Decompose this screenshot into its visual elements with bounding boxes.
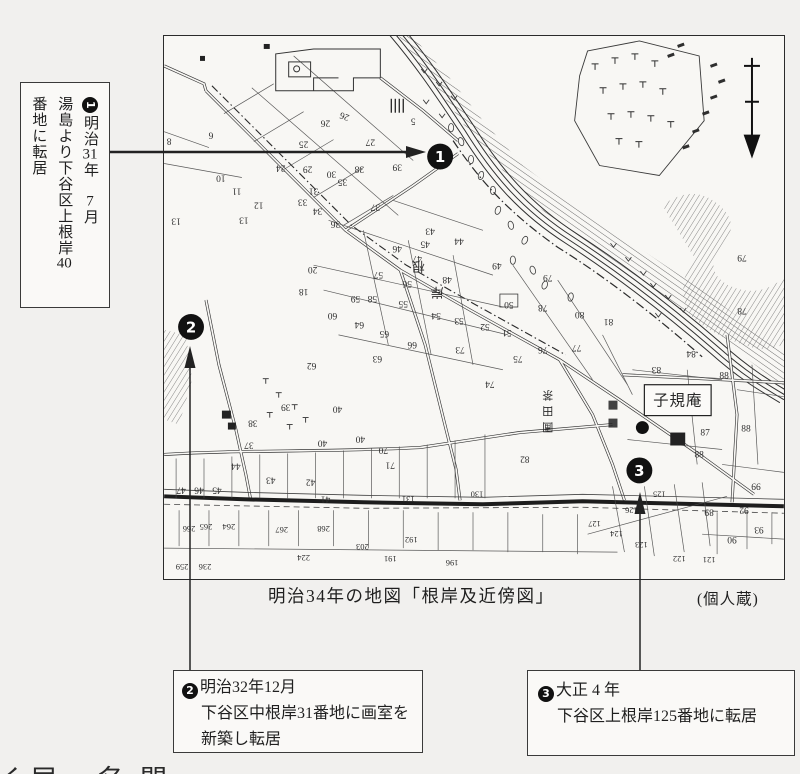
parcel-number: 126 [625, 505, 638, 515]
note3-line1: 3大正 4 年 [538, 678, 784, 704]
parcel-number: 125 [653, 489, 666, 499]
parcel-number: 52 [480, 321, 490, 331]
map-caption: 明治34年の地図「根岸及近傍図」 [268, 583, 555, 608]
parcel-number: 62 [307, 360, 317, 370]
parcel-number: 6 [208, 130, 213, 140]
note2-line3: 新築し転居 [182, 727, 414, 753]
parcel-number: 24 [276, 163, 286, 173]
marsh-hatch [164, 330, 192, 425]
parcel-number: 259 [176, 562, 189, 572]
parcel-number: 60 [328, 310, 338, 320]
parcel-number: 41 [321, 493, 331, 503]
parcel-number: 29 [303, 164, 313, 174]
residence-marker-1: 1 [427, 144, 453, 170]
parcel-number: 40 [355, 434, 365, 444]
parcel-number: 36 [331, 218, 341, 228]
note3-text1: 大正 4 年 [556, 682, 620, 699]
parcel-number: 54 [431, 310, 441, 320]
parcel-number: 71 [385, 459, 395, 469]
note1-vertical-line: 湯島より下谷区上根岸40 [50, 96, 76, 294]
parcel-number: 47 [176, 484, 186, 494]
cutoff-kanji-fragment: 居 [30, 758, 57, 774]
parcel-number: 42 [306, 476, 316, 486]
parcel-number: 44 [231, 460, 241, 470]
area-kanji-label: 根 [412, 259, 425, 274]
parcel-number: 18 [299, 286, 309, 296]
parcel-number: 79 [737, 252, 747, 262]
parcel-number: 57 [373, 269, 383, 279]
parcel-number: 48 [442, 274, 452, 284]
parcel-number: 45 [420, 238, 430, 248]
stream-hatch [662, 194, 784, 349]
parcel-number: 127 [588, 519, 601, 529]
parcel-number: 5 [411, 116, 416, 126]
cemetery-area [575, 41, 726, 176]
parcel-number: 264 [222, 522, 235, 532]
parcel-number: 90 [727, 534, 737, 544]
parcel-number: 81 [604, 316, 614, 326]
map-credit: (個人蔵) [697, 587, 759, 609]
parcel-number: 40 [318, 438, 328, 448]
note3-line2: 下谷区上根岸125番地に転居 [538, 704, 784, 730]
parcel-number: 64 [354, 319, 364, 329]
annotation-note-2: 2明治32年12月 下谷区中根岸31番地に画室を 新築し転居 [173, 670, 423, 753]
parcel-number: 63 [372, 353, 382, 363]
note2-line2: 下谷区中根岸31番地に画室を [182, 701, 414, 727]
parcel-number: 49 [492, 260, 502, 270]
parcel-number: 78 [538, 302, 548, 312]
parcel-number: 236 [199, 562, 212, 572]
map-canvas: 子規庵 681011121313242526262729303133343536… [164, 36, 784, 579]
parcel-number: 39 [281, 402, 291, 412]
parcel-number: 92 [739, 504, 749, 514]
parcel-number: 38 [354, 164, 364, 174]
parcel-number: 39 [392, 162, 402, 172]
parcel-number: 76 [538, 344, 548, 354]
parcel-number: 56 [402, 278, 412, 288]
parcel-number: 70 [378, 444, 388, 454]
cutoff-kanji-fragment: 間 [140, 758, 167, 774]
parcel-number: 130 [471, 489, 484, 499]
parcel-number: 59 [350, 293, 360, 303]
note2-line1: 2明治32年12月 [182, 675, 414, 701]
parcel-number: 37 [370, 201, 380, 211]
boundary-dashdot-road [212, 86, 566, 355]
parcel-number: 51 [502, 327, 512, 337]
parcel-number: 33 [298, 196, 308, 206]
parcel-number: 267 [275, 525, 288, 535]
scanned-book-page: { "annotations": { "note1": { "lines": [… [0, 0, 800, 774]
parcel-number: 123 [635, 540, 648, 550]
parcel-number: 27 [365, 137, 375, 147]
parcel-number: 88 [719, 372, 729, 382]
parcel-number: 87 [700, 429, 710, 439]
parcel-number: 11 [232, 185, 241, 195]
parcel-number: 84 [686, 348, 696, 358]
parcel-number: 191 [384, 554, 397, 564]
parcel-number: 26 [338, 109, 351, 122]
parcel-number: 38 [248, 418, 258, 428]
parcel-number: 35 [337, 176, 347, 186]
svg-text:1: 1 [435, 148, 445, 166]
note1-vertical-line: 番地に転居 [25, 96, 51, 294]
parcel-number: 121 [703, 555, 716, 565]
north-arrow-icon [744, 58, 760, 156]
parcel-number: 46 [392, 243, 402, 253]
parcel-number: 44 [454, 235, 464, 245]
parcel-number: 77 [572, 342, 582, 352]
area-kanji-label: 茶 [542, 389, 553, 402]
parcel-number: 46 [194, 484, 204, 494]
parcel-number: 53 [454, 315, 464, 325]
parcel-number: 203 [356, 542, 369, 552]
annotation-note-1: 1明治31年 7月湯島より下谷区上根岸40番地に転居 [20, 82, 110, 308]
parcel-number: 93 [754, 524, 764, 534]
parcel-number: 13 [239, 214, 249, 224]
parcel-number: 45 [212, 484, 222, 494]
note3-badge: 3 [538, 686, 554, 702]
parcel-number: 37 [244, 440, 254, 450]
compound-buildings [276, 49, 381, 91]
parcel-number: 131 [402, 494, 415, 504]
hatch-building-mark [391, 99, 403, 113]
note1-vertical-line: 1明治31年 7月 [76, 96, 102, 294]
parcel-number: 83 [651, 364, 661, 374]
area-kanji-label: 岸 [431, 285, 444, 300]
parcel-number: 73 [455, 344, 465, 354]
parcel-number: 20 [308, 264, 318, 274]
residence-marker-2: 2 [178, 314, 204, 340]
parcel-number: 268 [317, 524, 330, 534]
parcel-number: 13 [171, 215, 181, 225]
area-kanji-label: 圃 [542, 421, 553, 434]
parcel-number: 74 [485, 379, 495, 389]
svg-text:3: 3 [634, 462, 644, 480]
parcel-number: 122 [673, 554, 686, 564]
parcel-number: 192 [405, 535, 418, 545]
parcel-number: 34 [313, 205, 323, 215]
parcel-number: 30 [327, 169, 337, 179]
parcel-number: 43 [266, 474, 276, 484]
parcel-number: 58 [367, 293, 377, 303]
parcel-number: 82 [520, 453, 530, 463]
map-figure: 子規庵 681011121313242526262729303133343536… [163, 35, 785, 580]
cutoff-kanji-fragment: 名 [97, 758, 124, 774]
parcel-number: 40 [333, 404, 343, 414]
shikian-dot [636, 421, 649, 434]
parcel-number: 124 [609, 529, 622, 539]
parcel-number: 55 [398, 298, 408, 308]
residence-marker-3: 3 [626, 457, 652, 483]
parcel-number: 31 [309, 185, 319, 195]
annotation-note-3: 3大正 4 年 下谷区上根岸125番地に転居 [527, 670, 795, 756]
shikian-label: 子規庵 [653, 392, 702, 410]
parcel-number: 10 [216, 172, 226, 182]
parcel-number: 78 [737, 305, 747, 315]
parcel-number: 50 [504, 299, 514, 309]
parcel-number: 99 [751, 480, 761, 490]
svg-text:2: 2 [186, 318, 196, 336]
parcel-number: 25 [299, 139, 309, 149]
parcel-number: 224 [297, 553, 310, 563]
parcel-number: 79 [543, 272, 553, 282]
note2-text1: 明治32年12月 [200, 679, 296, 696]
parcel-number: 43 [425, 225, 435, 235]
parcel-number: 26 [321, 118, 331, 128]
parcel-number: 75 [513, 353, 523, 363]
parcel-number: 66 [407, 339, 417, 349]
parcel-number: 265 [200, 522, 213, 532]
note2-badge: 2 [182, 683, 198, 699]
parcel-number: 196 [446, 558, 459, 568]
parcel-number: 88 [741, 425, 751, 435]
parcel-number: 65 [379, 328, 389, 338]
parcel-number: 80 [575, 309, 585, 319]
parcel-number: 88 [694, 450, 704, 460]
parcel-number: 12 [254, 199, 264, 209]
parcel-number: 266 [183, 524, 196, 534]
cutoff-kanji-fragment: く [0, 758, 25, 774]
parcel-number: 89 [704, 506, 714, 516]
parcel-number: 8 [166, 136, 171, 146]
area-kanji-label: 田 [542, 405, 553, 417]
page-text-fragments: く居名間 [0, 758, 200, 774]
